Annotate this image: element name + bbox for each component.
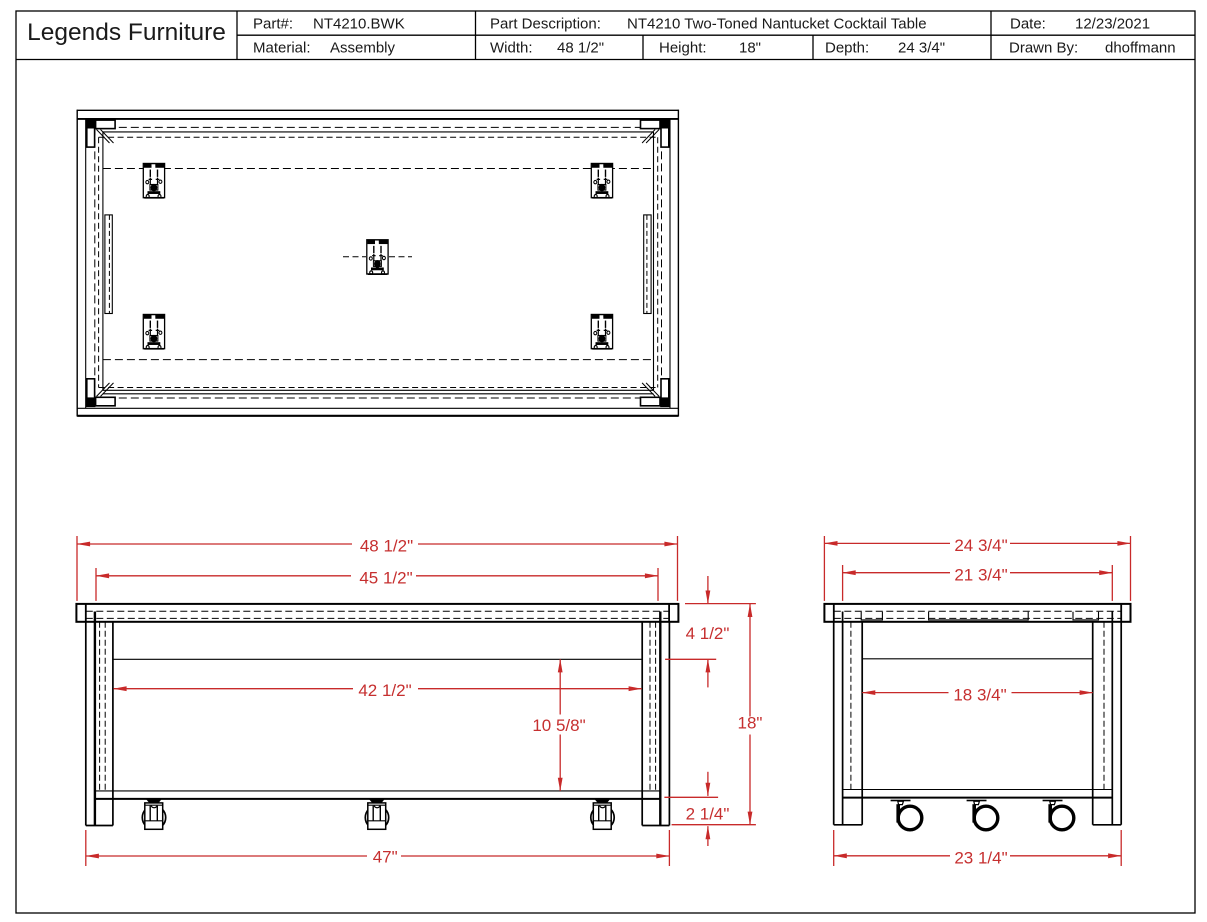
- svg-text:21 3/4": 21 3/4": [954, 565, 1007, 584]
- svg-text:Part Description:: Part Description:: [490, 16, 601, 33]
- svg-text:24 3/4": 24 3/4": [898, 40, 945, 57]
- svg-text:Depth:: Depth:: [825, 40, 869, 57]
- svg-text:dhoffmann: dhoffmann: [1105, 40, 1176, 57]
- svg-text:48 1/2": 48 1/2": [360, 537, 413, 556]
- svg-text:4 1/2": 4 1/2": [686, 624, 730, 643]
- svg-text:Part#:: Part#:: [253, 16, 293, 33]
- svg-text:12/23/2021: 12/23/2021: [1075, 16, 1150, 33]
- svg-text:Width:: Width:: [490, 40, 533, 57]
- svg-text:Drawn By:: Drawn By:: [1009, 40, 1078, 57]
- svg-text:Legends Furniture: Legends Furniture: [27, 19, 226, 46]
- svg-text:48 1/2": 48 1/2": [557, 40, 604, 57]
- svg-text:47": 47": [373, 848, 398, 867]
- svg-text:18 3/4": 18 3/4": [953, 685, 1006, 704]
- svg-text:2 1/4": 2 1/4": [686, 804, 730, 823]
- svg-text:10 5/8": 10 5/8": [532, 716, 585, 735]
- svg-text:45 1/2": 45 1/2": [359, 568, 412, 587]
- svg-text:Assembly: Assembly: [330, 40, 396, 57]
- svg-text:NT4210.BWK: NT4210.BWK: [313, 16, 405, 33]
- svg-text:23 1/4": 23 1/4": [954, 849, 1007, 868]
- svg-text:18": 18": [739, 40, 761, 57]
- svg-text:42 1/2": 42 1/2": [358, 681, 411, 700]
- svg-text:18": 18": [738, 714, 763, 733]
- svg-text:NT4210 Two-Toned Nantucket Coc: NT4210 Two-Toned Nantucket Cocktail Tabl…: [627, 16, 927, 33]
- svg-text:Height:: Height:: [659, 40, 707, 57]
- svg-text:Date:: Date:: [1010, 16, 1046, 33]
- svg-text:Material:: Material:: [253, 40, 311, 57]
- svg-text:24 3/4": 24 3/4": [954, 536, 1007, 555]
